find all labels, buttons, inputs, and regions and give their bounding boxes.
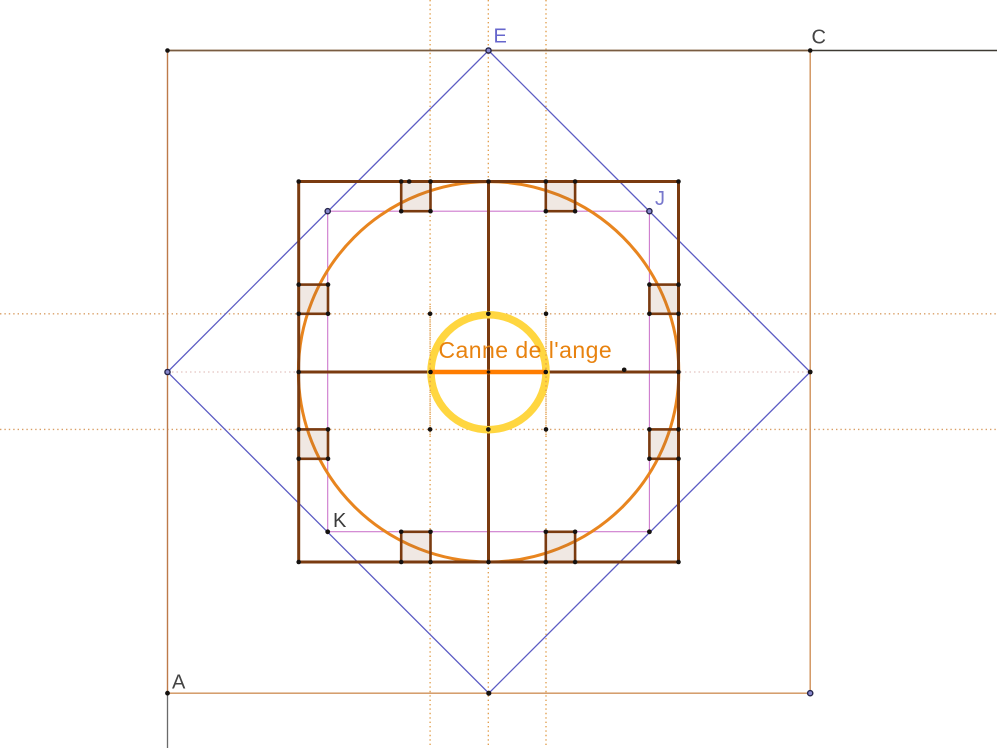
svg-text:K: K xyxy=(333,510,347,532)
svg-text:E: E xyxy=(494,26,507,48)
svg-text:J: J xyxy=(655,188,665,210)
svg-text:C: C xyxy=(812,27,826,49)
svg-text:A: A xyxy=(172,672,186,694)
svg-text:Canne de l'ange: Canne de l'ange xyxy=(439,337,613,363)
